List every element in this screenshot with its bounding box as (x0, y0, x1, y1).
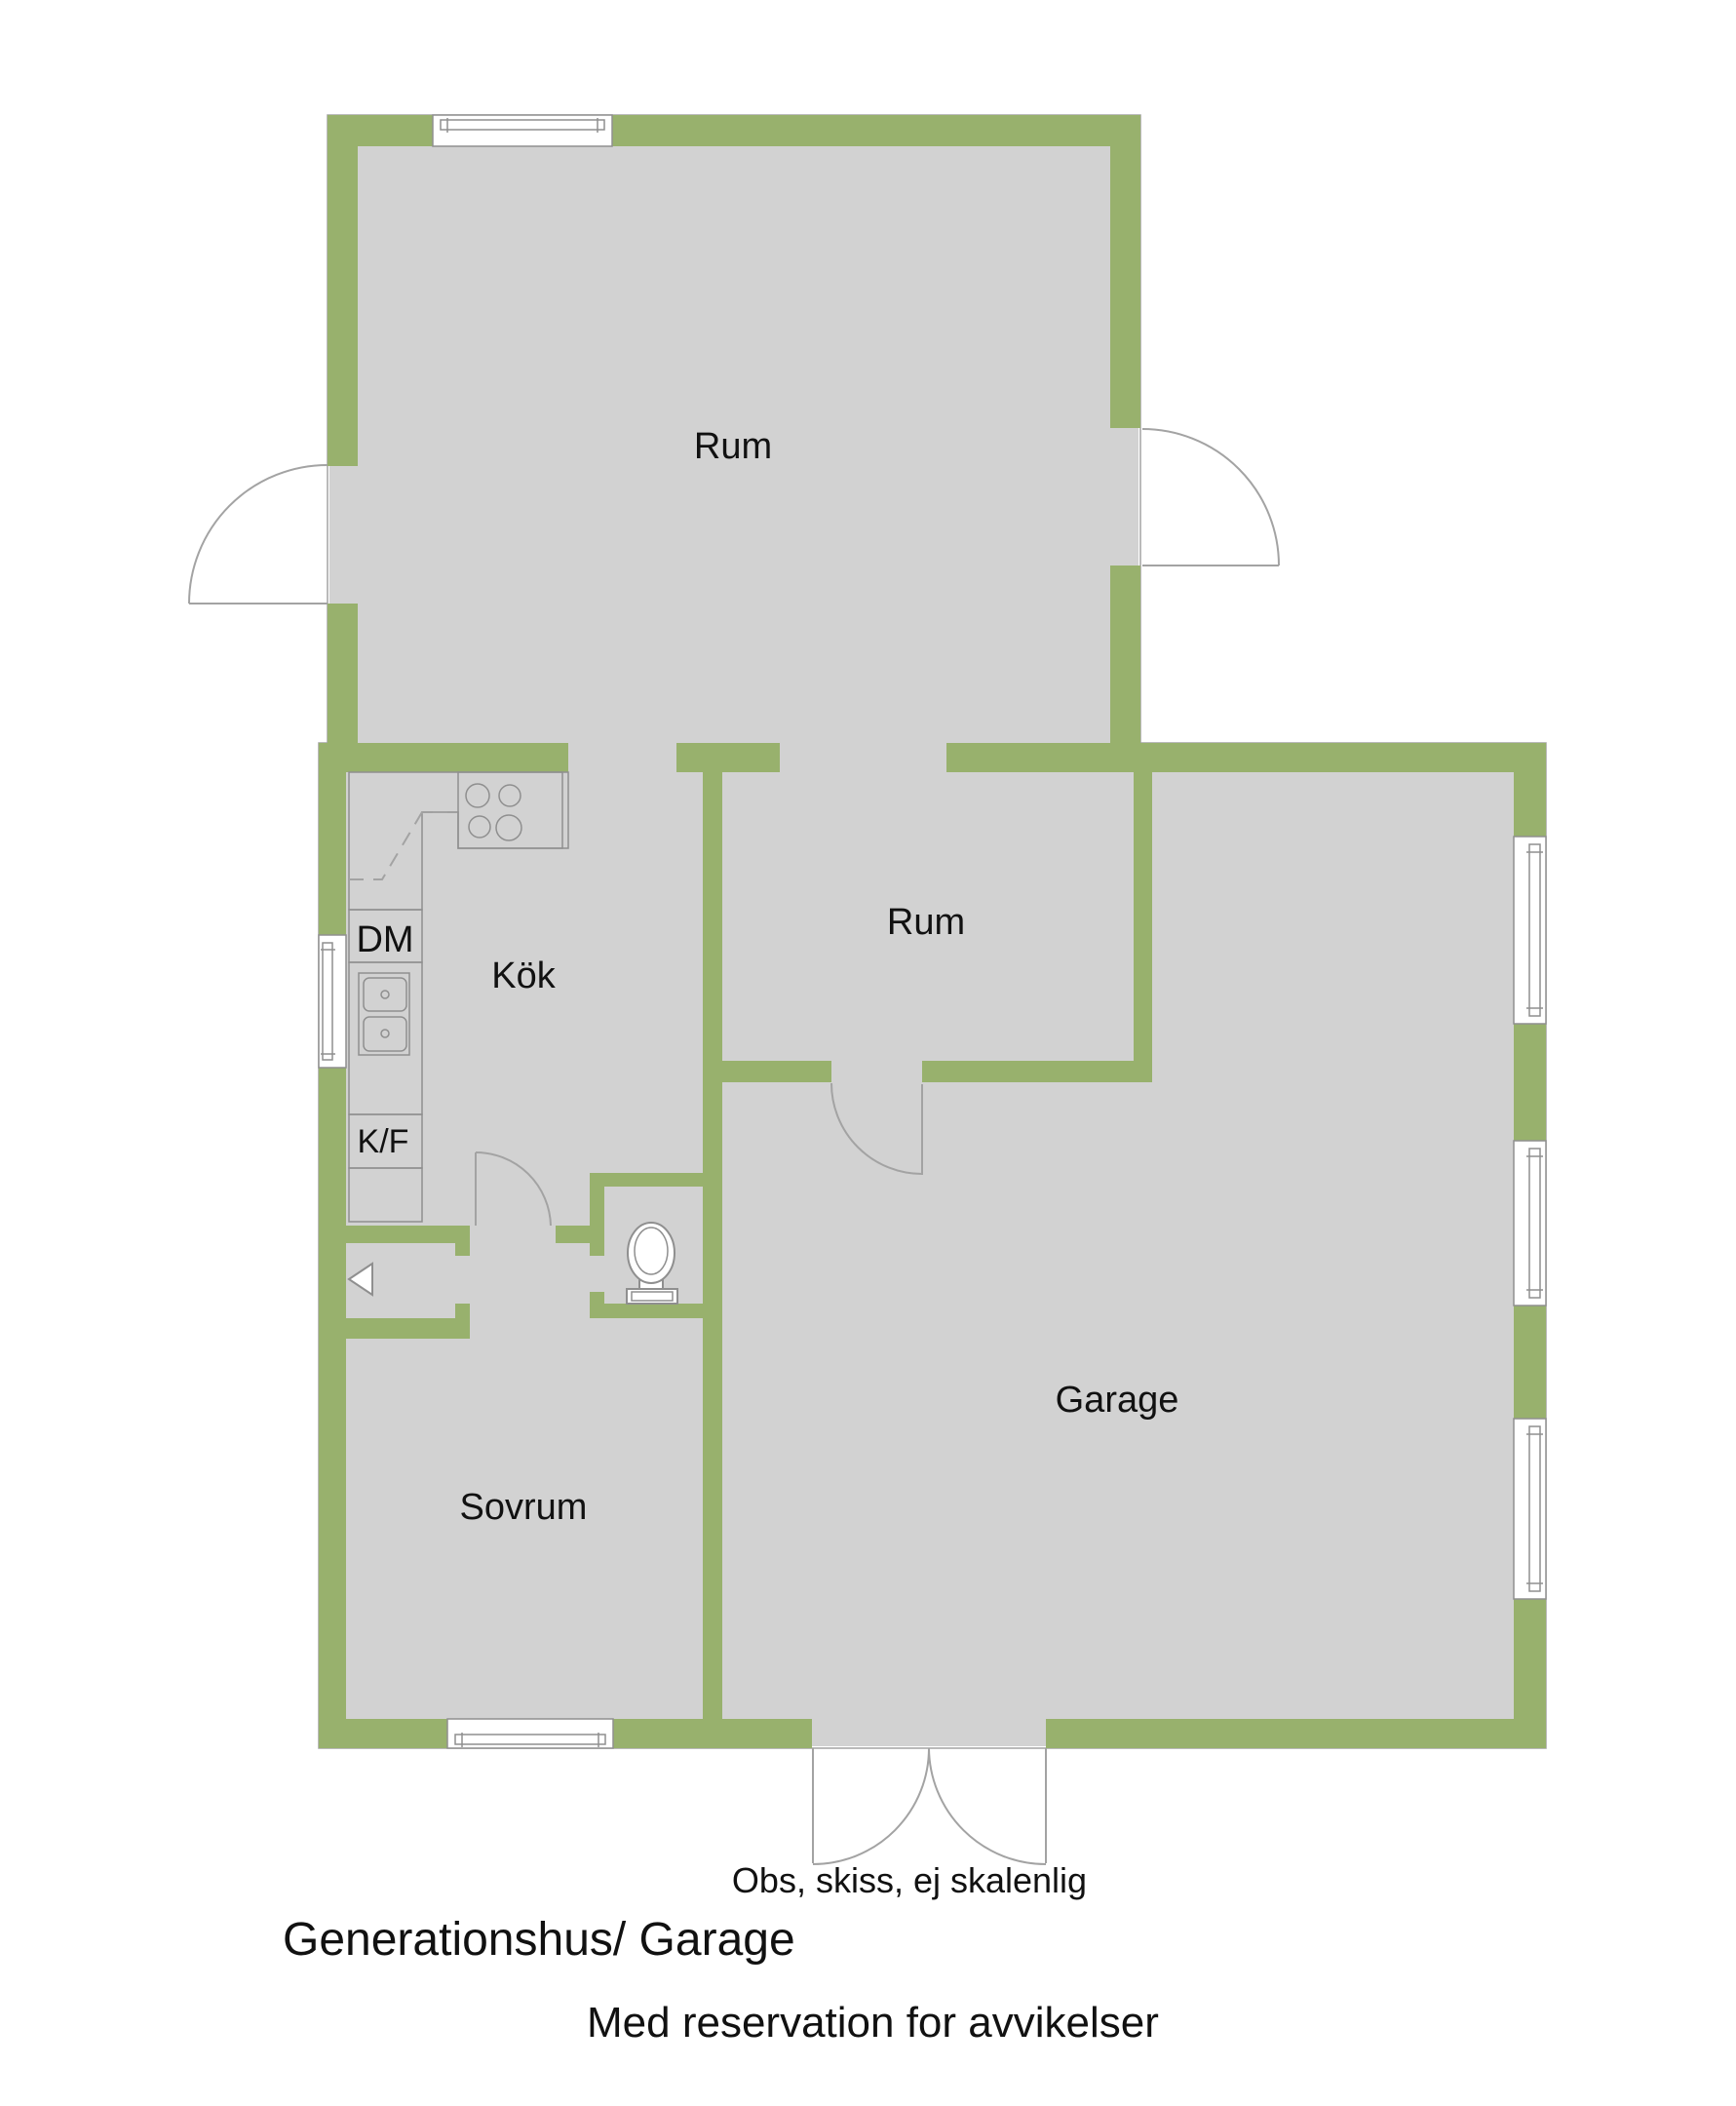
door-arc-icon-right-exterior (1142, 429, 1279, 565)
wall-bedroom-top (319, 1318, 470, 1339)
wall-left-lower-b (319, 1068, 346, 1748)
appliance-label-fridge-freezer: K/F (358, 1123, 409, 1160)
wall-right-upper-a (1110, 115, 1140, 428)
note-reservation: Med reservation for avvikelser (587, 1999, 1159, 2047)
wall-hall-top-b (556, 1226, 592, 1243)
room-label-bedroom: Sovrum (460, 1487, 588, 1528)
toilet-icon (627, 1223, 677, 1304)
wall-bottom-b (1046, 1719, 1546, 1748)
window-icon-right-3 (1514, 1419, 1546, 1599)
floor-plan-svg: Rum Rum Kök Sovrum Garage DM K/F Obs, sk… (0, 0, 1736, 2106)
wall-bath-top (592, 1173, 703, 1187)
wall-mid-band-b (676, 743, 780, 772)
wall-rum-mid-right (1134, 772, 1152, 1061)
door-arc-icon-left-exterior (189, 465, 328, 604)
wall-bedroom-top-stub (455, 1304, 470, 1318)
room-label-kitchen: Kök (491, 955, 556, 996)
wall-left-upper-b (328, 604, 358, 743)
wall-left-upper-a (328, 115, 358, 466)
floor-lower-block (321, 745, 1544, 1746)
wall-mid-band-a (319, 743, 568, 772)
window-icon-right-1 (1514, 837, 1546, 1024)
room-label-rum-mid: Rum (887, 902, 965, 943)
wall-right-upper-b (1110, 565, 1140, 743)
wall-garage-north-b (922, 1061, 1152, 1082)
room-label-rum-top: Rum (694, 426, 772, 467)
room-label-garage: Garage (1056, 1380, 1179, 1421)
note-sketch-disclaimer: Obs, skiss, ej skalenlig (732, 1860, 1087, 1900)
appliance-label-dishwasher: DM (356, 919, 413, 960)
wall-bath-left-a (590, 1173, 604, 1256)
garage-door-icon (813, 1748, 1046, 1864)
window-icon-top (433, 115, 612, 146)
wall-hall-top-a (319, 1226, 470, 1243)
wall-garage-north-a (722, 1061, 831, 1082)
wall-mid-band-c (946, 743, 1546, 772)
wall-hall-top-stub (455, 1243, 470, 1256)
window-icon-left (319, 935, 346, 1068)
plan-title: Generationshus/ Garage (283, 1914, 795, 1966)
wall-bath-bottom (590, 1304, 722, 1318)
wall-divider-vertical (703, 772, 722, 1719)
wall-left-lower-a (319, 743, 346, 935)
floor-plan-page: Rum Rum Kök Sovrum Garage DM K/F Obs, sk… (0, 0, 1736, 2106)
window-icon-bottom (447, 1719, 613, 1748)
window-icon-right-2 (1514, 1141, 1546, 1306)
